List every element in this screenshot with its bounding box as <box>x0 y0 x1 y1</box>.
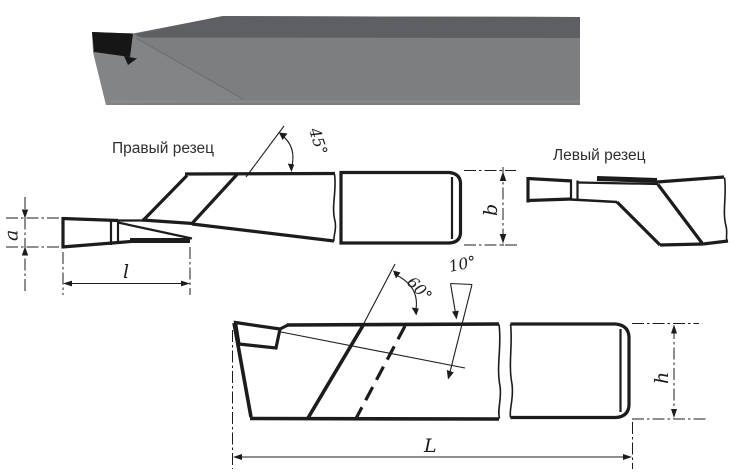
drawing-page: Правый резец a <box>0 0 739 473</box>
nose-top-edge <box>62 219 118 221</box>
dim-h-label: h <box>651 372 673 384</box>
dimension-h: h <box>632 324 707 420</box>
right-cutter-label: Правый резец <box>112 140 214 157</box>
dim-b-label: b <box>480 204 502 216</box>
left-cutter-outline <box>528 177 728 245</box>
arrowhead <box>623 454 632 460</box>
body-bottom-edge <box>250 419 499 420</box>
tool-3d-render <box>92 16 580 105</box>
break-line <box>499 325 501 419</box>
chamfer-diagonal-2 <box>658 185 702 244</box>
dim-l-label: l <box>123 261 129 283</box>
arrowhead <box>671 409 677 418</box>
arrowhead <box>63 281 72 287</box>
arrowhead <box>233 454 242 460</box>
body-top-edge <box>657 177 724 182</box>
bottom-edge-extension <box>571 200 617 203</box>
arrowhead <box>181 281 190 287</box>
left-cutter-view: Левый резец <box>528 147 728 245</box>
angle-slant-line <box>449 285 473 379</box>
arrowhead <box>500 172 507 182</box>
hidden-edge-diagonal <box>356 326 405 419</box>
angle-45-label: 45° <box>305 125 331 158</box>
break-line <box>724 178 727 243</box>
chamfer-bottom-edge <box>142 220 193 224</box>
right-cutter-view: Правый резец a <box>1 125 521 295</box>
left-cutter-label: Левый резец <box>553 147 646 164</box>
chamfer-bottom-edge <box>660 244 703 245</box>
angle-top-tick <box>451 284 473 285</box>
nose-top-edge <box>528 179 572 182</box>
arrowhead <box>447 370 454 380</box>
body-top-edge <box>287 324 499 325</box>
dimension-L: L <box>233 330 633 469</box>
angle-10-annotation: 10° <box>447 253 478 380</box>
support-bar <box>597 179 657 181</box>
right-cutter-outline <box>62 174 336 249</box>
angle-45-annotation: 45° <box>246 125 331 177</box>
arrowhead <box>452 311 459 320</box>
nose-bottom-edge <box>62 242 131 248</box>
body-near-edge <box>192 224 334 241</box>
angle-60-annotation: 60° <box>363 264 435 325</box>
near-cutting-edge <box>118 223 192 239</box>
side-view-outline <box>234 323 500 420</box>
body-bottom-edge <box>703 241 728 244</box>
chamfer-diagonal-1 <box>617 202 660 245</box>
technical-drawing-canvas: Правый резец a <box>0 0 739 473</box>
chamfer-diagonal-1 <box>143 176 187 221</box>
shank-end-outline <box>341 173 461 244</box>
arrowhead <box>412 308 419 316</box>
arrowhead <box>671 325 677 334</box>
dimension-a: a <box>1 197 61 291</box>
break-line <box>510 324 512 418</box>
nose-bottom-edge <box>528 199 572 201</box>
shank-end-segment-side <box>510 324 629 418</box>
dimension-l: l <box>63 247 190 295</box>
side-view: 60° 10° h L <box>233 253 708 469</box>
render-top-face <box>134 16 580 38</box>
chamfer-diagonal-2 <box>192 175 237 224</box>
shank-end-segment-top <box>341 173 461 244</box>
shank-end-right <box>616 324 629 418</box>
angle-leader-line <box>246 126 284 177</box>
angle-60-label: 60° <box>403 273 435 305</box>
insert-step-edge <box>280 325 288 329</box>
arrowhead <box>288 164 294 173</box>
arrowhead <box>22 247 28 256</box>
dim-a-label: a <box>1 230 23 241</box>
body-top-edge <box>185 174 335 175</box>
dim-L-label: L <box>423 435 437 457</box>
arrowhead <box>22 210 28 219</box>
dimension-b: b <box>464 167 520 249</box>
edge-reference-line <box>281 332 465 368</box>
insert-outline <box>236 323 281 349</box>
break-line <box>334 174 336 241</box>
angle-10-label: 10° <box>447 253 478 276</box>
near-cutting-edge <box>578 183 659 185</box>
angle-leader-line <box>363 264 395 325</box>
arrowhead <box>500 234 507 244</box>
